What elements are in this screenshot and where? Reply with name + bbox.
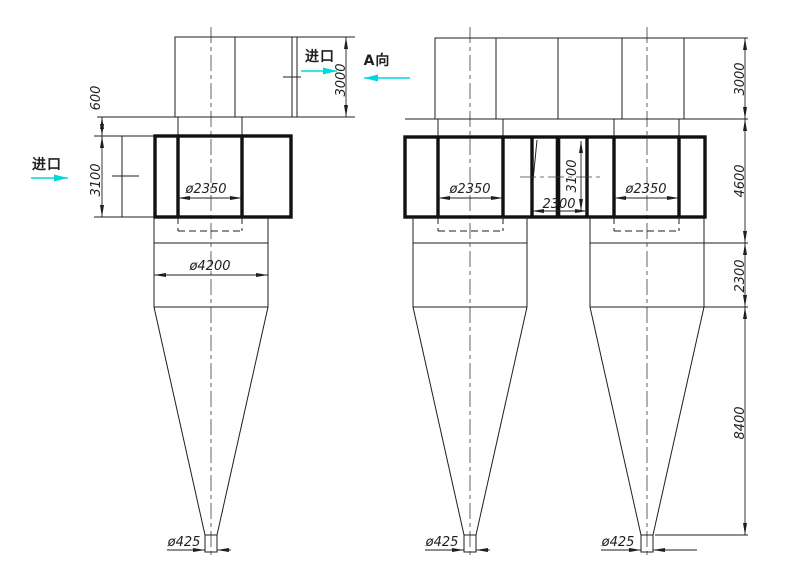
inlet-top-label: 进口 bbox=[305, 49, 335, 65]
technical-drawing-canvas: 600 3100 3000 ø2350 ø4200 ø425 进口 进口 A向 bbox=[0, 0, 800, 569]
left-inlet-duct bbox=[112, 136, 155, 217]
dim-top-box-height: 3000 bbox=[733, 62, 748, 95]
dim-body-height: 3100 bbox=[89, 163, 104, 196]
dim-top-box-height: 3000 bbox=[334, 63, 349, 96]
left-dimensions: 600 3100 3000 ø2350 ø4200 ø425 bbox=[89, 37, 349, 550]
left-labels: 进口 进口 A向 bbox=[31, 49, 410, 178]
dim-outlet-dia: ø2350 bbox=[184, 182, 226, 197]
right-dimensions: ø2350 ø2350 2300 3100 3000 4600 2300 840… bbox=[425, 38, 748, 550]
left-view-side: 600 3100 3000 ø2350 ø4200 ø425 进口 进口 A向 bbox=[31, 27, 410, 557]
view-a-label: A向 bbox=[364, 52, 391, 69]
inlet-side-label: 进口 bbox=[32, 157, 62, 173]
dim-mid-height: 2300 bbox=[733, 259, 748, 292]
dim-outlet-dia-left: ø2350 bbox=[448, 182, 490, 197]
right-top-box bbox=[435, 38, 748, 119]
right-view-front: ø2350 ø2350 2300 3100 3000 4600 2300 840… bbox=[405, 27, 748, 557]
dim-center-gap: 2300 bbox=[542, 197, 575, 212]
right-cones bbox=[413, 307, 748, 552]
dim-discharge-dia: ø425 bbox=[167, 535, 201, 550]
cyclone-drawing: 600 3100 3000 ø2350 ø4200 ø425 进口 进口 A向 bbox=[0, 0, 800, 569]
dim-plate-gap: 600 bbox=[89, 86, 104, 111]
dim-body-dia: ø4200 bbox=[188, 259, 230, 274]
dim-cone-height: 8400 bbox=[733, 406, 748, 439]
dim-upper-height: 4600 bbox=[733, 164, 748, 197]
dim-discharge-dia-left: ø425 bbox=[425, 535, 459, 550]
dim-body-height: 3100 bbox=[565, 159, 580, 192]
dim-discharge-dia-right: ø425 bbox=[601, 535, 635, 550]
dim-outlet-dia-right: ø2350 bbox=[624, 182, 666, 197]
